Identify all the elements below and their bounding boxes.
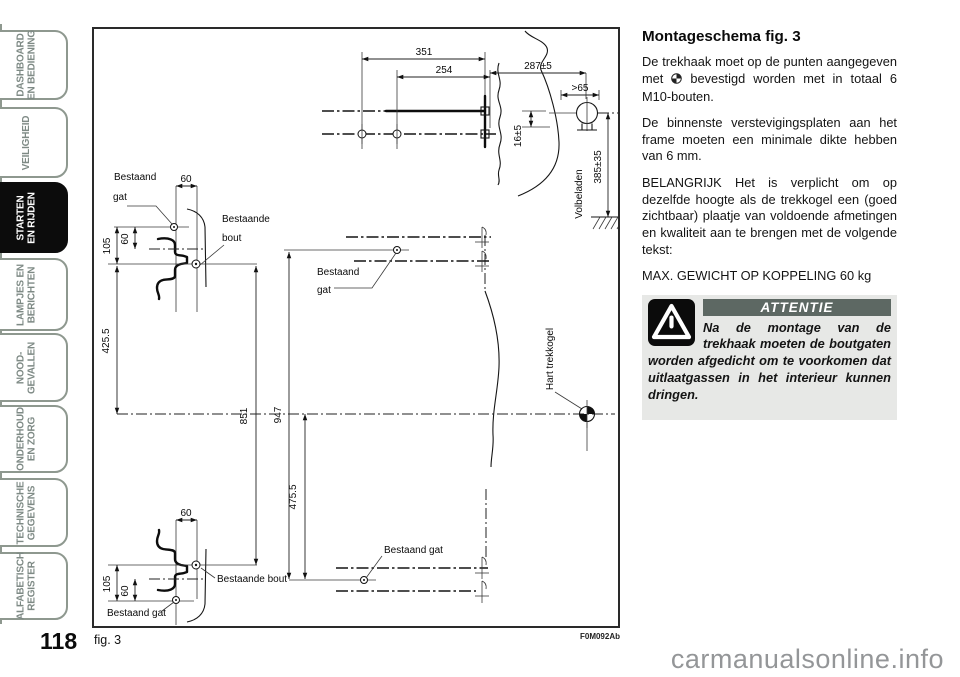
dim-105-text: 105 (102, 237, 113, 254)
middle-rails: Bestaand gat (284, 227, 491, 296)
dim-287-text: 287±5 (524, 61, 552, 72)
dim-851-text: 851 (239, 407, 250, 424)
tab-line: TECHNISCHE (17, 481, 28, 544)
sidebar-tab-label: ALFABETISCH REGISTER (17, 552, 38, 620)
paragraph-2: De binnenste verstevigingsplaten aan het… (642, 115, 897, 165)
paragraph-max-gewicht: MAX. GEWICHT OP KOPPELING 60 kg (642, 268, 897, 285)
tab-line: VEILIGHEID (22, 115, 33, 170)
tab-line: BERICHTEN (27, 264, 38, 326)
sidebar-tab-label: STARTEN EN RIJDEN (17, 192, 38, 244)
sidebar-tab-dashboard[interactable]: DASHBOARD EN BEDIENING (0, 30, 68, 100)
bestaand-gat-right-label: Bestaand gat (384, 545, 443, 556)
dim-60v-bottom-text: 60 (120, 585, 131, 597)
watermark: carmanualsonline.info (671, 644, 944, 675)
dim-254-text: 254 (436, 65, 453, 76)
sidebar-tab-label: ONDERHOUD EN ZORG (17, 407, 38, 471)
sidebar-tab-noodgevallen[interactable]: NOOD- GEVALLEN (0, 333, 68, 402)
dim-475-text: 475.5 (288, 484, 299, 509)
dimension-385: 385±35 Volbeladen (574, 113, 608, 219)
dim-425-text: 425.5 (101, 328, 112, 353)
bottom-rails: Bestaand gat (289, 545, 489, 603)
dim-16-text: 16±5 (513, 124, 524, 147)
tab-line: GEGEVENS (27, 481, 38, 544)
sidebar-tab-register[interactable]: ALFABETISCH REGISTER (0, 552, 68, 620)
paragraph-3: BELANGRIJK Het is verplicht om op dezelf… (642, 175, 897, 259)
tab-line: LAMPJES EN (17, 264, 28, 326)
ground-symbol (591, 217, 618, 229)
upper-bracket-detail: Bestaand gat 60 Bestaande bout 105 60 (102, 172, 270, 312)
bestaand-gat-mid-label: gat (317, 285, 331, 296)
lower-bracket-detail: 60 Bestaande bout 105 60 Bestaand gat (102, 508, 287, 625)
dim-60-text: 60 (180, 174, 192, 185)
dimension-gt65: >65 (561, 83, 599, 100)
figure-caption: fig. 3 (94, 633, 121, 647)
bestaande-bout-bottom-label: Bestaande bout (217, 574, 287, 585)
figure-code: F0M092Ab (420, 632, 620, 641)
bestaand-gat-mid-label: Bestaand (317, 267, 359, 278)
dim-60v-text: 60 (120, 233, 131, 245)
attention-header: ATTENTIE (703, 299, 891, 316)
tow-hook-mounting-diagram: 351 254 287±5 >65 16±5 385±35 Volbeladen (94, 29, 618, 626)
paragraph-1: De trekhaak moet op de punten aangegeven… (642, 54, 897, 105)
tab-line: EN RIJDEN (27, 192, 38, 244)
tab-line: GEVALLEN (27, 341, 38, 393)
bestaand-gat-label: Bestaand (114, 172, 156, 183)
dim-105-bottom-text: 105 (102, 575, 113, 592)
sidebar-tab-label: DASHBOARD EN BEDIENING (17, 30, 38, 100)
tab-line: EN BEDIENING (27, 30, 38, 100)
bestaande-bout-label: Bestaande (222, 214, 270, 225)
sidebar-tab-label: TECHNISCHE GEGEVENS (17, 481, 38, 544)
sidebar-tab-onderhoud[interactable]: ONDERHOUD EN ZORG (0, 405, 68, 473)
tab-line: DASHBOARD (17, 30, 28, 100)
volbeladen-label: Volbeladen (574, 169, 585, 219)
dim-gt65-text: >65 (572, 83, 589, 94)
hart-trekkogel-label: Hart trekkogel (545, 328, 556, 390)
tab-line: ONDERHOUD (17, 407, 28, 471)
sidebar-tab-label: VEILIGHEID (22, 115, 33, 170)
vertical-dimensions: 425.5 851 947 475.5 (101, 252, 615, 579)
car-body-outline (485, 31, 559, 559)
dim-60-bottom-text: 60 (180, 508, 192, 519)
article-title: Montageschema fig. 3 (642, 28, 897, 45)
tab-line: ALFABETISCH (17, 552, 28, 620)
dim-385-text: 385±35 (593, 150, 604, 184)
dimension-16: 16±5 (513, 111, 550, 147)
top-frame-rails (322, 96, 496, 147)
tab-line: EN ZORG (27, 407, 38, 471)
sidebar-tab-veiligheid[interactable]: VEILIGHEID (0, 107, 68, 178)
tab-line: NOOD- (17, 341, 28, 393)
page-number: 118 (40, 628, 77, 655)
figure-3-drawing: 351 254 287±5 >65 16±5 385±35 Volbeladen (92, 27, 620, 628)
dim-351-text: 351 (416, 47, 433, 58)
sidebar-tab-lampjes[interactable]: LAMPJES EN BERICHTEN (0, 258, 68, 331)
mount-point-symbol-icon (671, 72, 682, 89)
dim-947-text: 947 (273, 406, 284, 423)
sidebar-tab-label: LAMPJES EN BERICHTEN (17, 264, 38, 326)
article-column: Montageschema fig. 3 De trekhaak moet op… (642, 28, 897, 420)
hart-trekkogel: Hart trekkogel (545, 328, 595, 451)
attention-box: ATTENTIE Na de montage van de trekhaak m… (642, 295, 897, 420)
sidebar-tab-starten-en-rijden[interactable]: STARTEN EN RIJDEN (0, 182, 68, 253)
sidebar-tab-label: NOOD- GEVALLEN (17, 341, 38, 393)
bestaand-gat-label: gat (113, 192, 127, 203)
bestaande-bout-label: bout (222, 233, 242, 244)
tab-line: REGISTER (27, 552, 38, 620)
bestaand-gat-bottom-label: Bestaand gat (107, 608, 166, 619)
warning-triangle-icon (648, 299, 695, 346)
sidebar-tab-technische[interactable]: TECHNISCHE GEGEVENS (0, 478, 68, 547)
tab-line: STARTEN (17, 192, 28, 244)
